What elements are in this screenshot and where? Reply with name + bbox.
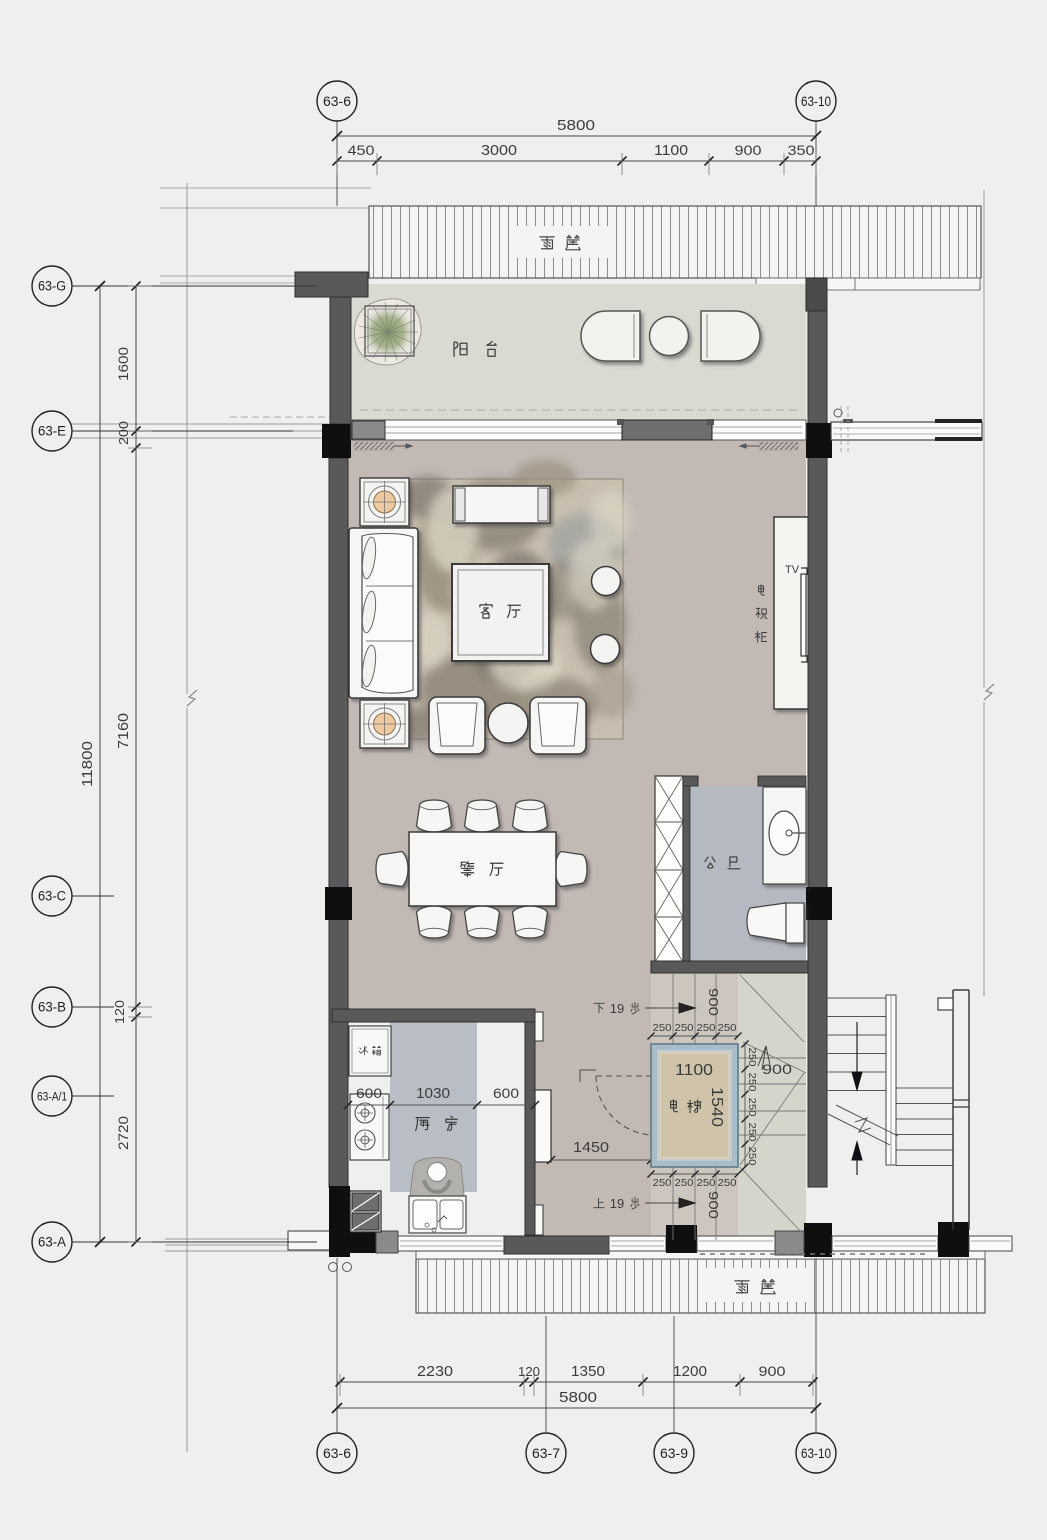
svg-text:250: 250 (746, 1048, 758, 1067)
svg-text:TV: TV (785, 564, 800, 576)
svg-text:63-7: 63-7 (532, 1446, 560, 1461)
svg-text:63-E: 63-E (38, 424, 66, 439)
svg-text:5800: 5800 (557, 117, 595, 134)
svg-text:250: 250 (746, 1147, 758, 1166)
svg-text:250: 250 (697, 1022, 716, 1034)
svg-text:1450: 1450 (573, 1139, 609, 1156)
svg-text:19: 19 (610, 1196, 624, 1211)
svg-text:600: 600 (356, 1085, 382, 1101)
svg-text:250: 250 (675, 1177, 694, 1189)
svg-text:3000: 3000 (481, 142, 517, 159)
svg-text:2230: 2230 (417, 1363, 453, 1380)
svg-text:250: 250 (653, 1177, 672, 1189)
svg-text:250: 250 (718, 1022, 737, 1034)
svg-text:900: 900 (762, 1061, 792, 1077)
svg-text:63-C: 63-C (38, 889, 66, 904)
svg-text:900: 900 (759, 1363, 786, 1379)
svg-text:11800: 11800 (79, 741, 96, 787)
svg-text:63-6: 63-6 (323, 94, 351, 109)
svg-text:63-G: 63-G (38, 279, 66, 294)
svg-text:900: 900 (706, 1191, 721, 1219)
svg-text:900: 900 (706, 988, 721, 1016)
svg-text:900: 900 (735, 142, 762, 158)
svg-text:1100: 1100 (654, 142, 688, 159)
svg-text:350: 350 (788, 142, 815, 158)
svg-text:63-10: 63-10 (801, 94, 831, 109)
svg-text:120: 120 (113, 1000, 127, 1024)
svg-text:2720: 2720 (115, 1116, 131, 1150)
svg-text:200: 200 (117, 421, 131, 445)
svg-text:5800: 5800 (559, 1389, 597, 1406)
svg-text:600: 600 (493, 1085, 519, 1101)
svg-text:63-9: 63-9 (660, 1446, 688, 1461)
svg-text:63-10: 63-10 (801, 1446, 831, 1461)
svg-text:250: 250 (746, 1098, 758, 1117)
svg-text:1100: 1100 (675, 1062, 713, 1079)
svg-text:19: 19 (610, 1001, 624, 1016)
svg-text:7160: 7160 (115, 713, 132, 749)
svg-text:1600: 1600 (115, 347, 131, 381)
svg-text:63-A/1: 63-A/1 (37, 1092, 67, 1104)
svg-text:250: 250 (675, 1022, 694, 1034)
svg-text:250: 250 (746, 1123, 758, 1142)
svg-text:250: 250 (718, 1177, 737, 1189)
svg-text:1540: 1540 (708, 1087, 725, 1127)
svg-text:250: 250 (653, 1022, 672, 1034)
svg-text:120: 120 (518, 1365, 540, 1379)
svg-text:450: 450 (348, 142, 375, 158)
svg-text:250: 250 (746, 1073, 758, 1092)
svg-text:1200: 1200 (673, 1363, 707, 1380)
svg-text:250: 250 (697, 1177, 716, 1189)
svg-text:1350: 1350 (571, 1363, 605, 1380)
svg-text:63-6: 63-6 (323, 1446, 351, 1461)
svg-text:1030: 1030 (416, 1085, 450, 1102)
svg-text:63-B: 63-B (38, 1000, 66, 1015)
svg-text:63-A: 63-A (38, 1235, 66, 1250)
